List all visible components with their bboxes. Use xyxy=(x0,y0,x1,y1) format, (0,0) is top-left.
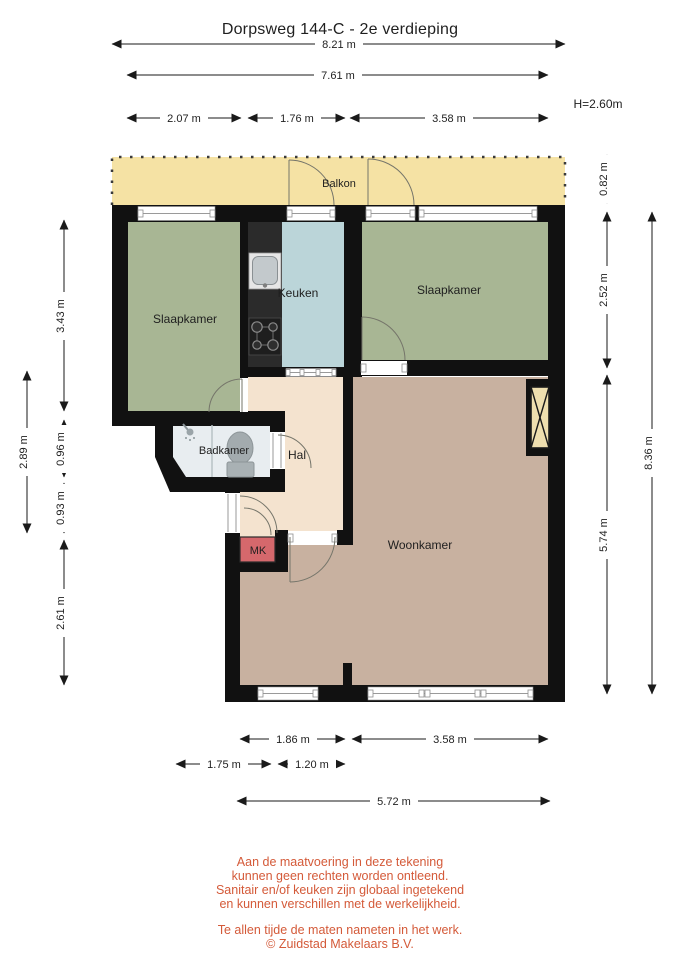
disclaimer-line-3: Sanitair en/of keuken zijn globaal inget… xyxy=(216,883,464,897)
dim-top-inner: 7.61 m xyxy=(127,68,548,82)
mk-label: MK xyxy=(250,545,267,557)
dim-left-badkamer: 0.96 m xyxy=(55,420,71,477)
dim-right-total: 8.36 m xyxy=(643,212,659,694)
copyright-line: © Zuidstad Makelaars B.V. xyxy=(266,937,414,951)
dim-left-entree: 0.93 m xyxy=(55,483,71,533)
badkamer-label: Badkamer xyxy=(199,445,249,457)
svg-text:5.74 m: 5.74 m xyxy=(598,518,610,552)
dim-left-onder: 2.61 m xyxy=(55,540,71,685)
slaapkamer-right-label: Slaapkamer xyxy=(417,283,481,297)
svg-text:0.93 m: 0.93 m xyxy=(55,491,67,525)
svg-text:0.96 m: 0.96 m xyxy=(55,432,67,466)
svg-text:8.36 m: 8.36 m xyxy=(643,436,655,470)
woonkamer-floor xyxy=(353,377,548,685)
floorplan-page: Dorpsweg 144-C - 2e verdieping H=2.60m xyxy=(0,0,679,960)
dim-top-slaapkamer: 2.07 m xyxy=(127,111,241,125)
disclaimer-line-2: kunnen geen rechten worden ontleend. xyxy=(232,869,449,883)
svg-text:1.76 m: 1.76 m xyxy=(280,113,314,125)
svg-text:8.21 m: 8.21 m xyxy=(322,39,356,51)
svg-text:1.75 m: 1.75 m xyxy=(207,759,241,771)
page-title: Dorpsweg 144-C - 2e verdieping xyxy=(222,21,458,38)
dim-bottom-d: 1.20 m xyxy=(278,757,345,771)
keuken-label: Keuken xyxy=(278,286,319,300)
dim-bottom-c: 1.75 m xyxy=(176,757,271,771)
svg-text:2.61 m: 2.61 m xyxy=(55,596,67,630)
svg-text:2.52 m: 2.52 m xyxy=(598,273,610,307)
floorplan-drawing: Dorpsweg 144-C - 2e verdieping H=2.60m xyxy=(0,0,679,960)
svg-text:2.07 m: 2.07 m xyxy=(167,113,201,125)
dim-left-outer: 2.89 m xyxy=(18,371,34,533)
dim-bottom-a: 1.86 m xyxy=(240,732,345,746)
svg-text:3.43 m: 3.43 m xyxy=(55,299,67,333)
stove-icon xyxy=(249,318,281,355)
disclaimer-line-4: en kunnen verschillen met de werkelijkhe… xyxy=(219,897,460,911)
svg-text:1.86 m: 1.86 m xyxy=(276,734,310,746)
window-bottom-right xyxy=(368,687,533,700)
dim-right-slaapkamer: 2.52 m xyxy=(598,212,614,368)
disclaimer-line-1: Aan de maatvoering in deze tekening xyxy=(237,855,443,869)
svg-text:3.58 m: 3.58 m xyxy=(432,113,466,125)
svg-text:0.82 m: 0.82 m xyxy=(598,162,610,196)
disclaimer-line-5: Te allen tijde de maten nameten in het w… xyxy=(218,923,463,937)
dim-top-total: 8.21 m xyxy=(112,37,565,51)
shaft xyxy=(531,387,549,448)
balkon-label: Balkon xyxy=(322,178,356,190)
window-slaapkamer-right xyxy=(419,207,537,221)
window-bottom-left xyxy=(258,687,318,700)
disclaimer: Aan de maatvoering in deze tekening kunn… xyxy=(216,855,464,951)
ceiling-height-label: H=2.60m xyxy=(573,97,622,111)
hal-label: Hal xyxy=(288,448,306,462)
dim-bottom-total: 5.72 m xyxy=(237,794,550,808)
dim-top-slaapkamer-right: 3.58 m xyxy=(350,111,548,125)
svg-text:2.89 m: 2.89 m xyxy=(18,435,30,469)
svg-text:3.58 m: 3.58 m xyxy=(433,734,467,746)
dim-top-keuken: 1.76 m xyxy=(248,111,345,125)
sink-icon xyxy=(249,253,281,289)
svg-text:5.72 m: 5.72 m xyxy=(377,796,411,808)
dim-right-balkon: 0.82 m xyxy=(598,155,614,203)
slaapkamer-left-label: Slaapkamer xyxy=(153,312,217,326)
dim-bottom-b: 3.58 m xyxy=(352,732,548,746)
window-keuken-hal xyxy=(286,369,336,377)
svg-text:1.20 m: 1.20 m xyxy=(295,759,329,771)
woonkamer-label: Woonkamer xyxy=(388,538,452,552)
dim-left-slaapkamer: 3.43 m xyxy=(55,220,71,411)
dim-right-woonkamer: 5.74 m xyxy=(598,375,614,694)
window-slaapkamer-left xyxy=(138,207,215,221)
svg-text:7.61 m: 7.61 m xyxy=(321,70,355,82)
